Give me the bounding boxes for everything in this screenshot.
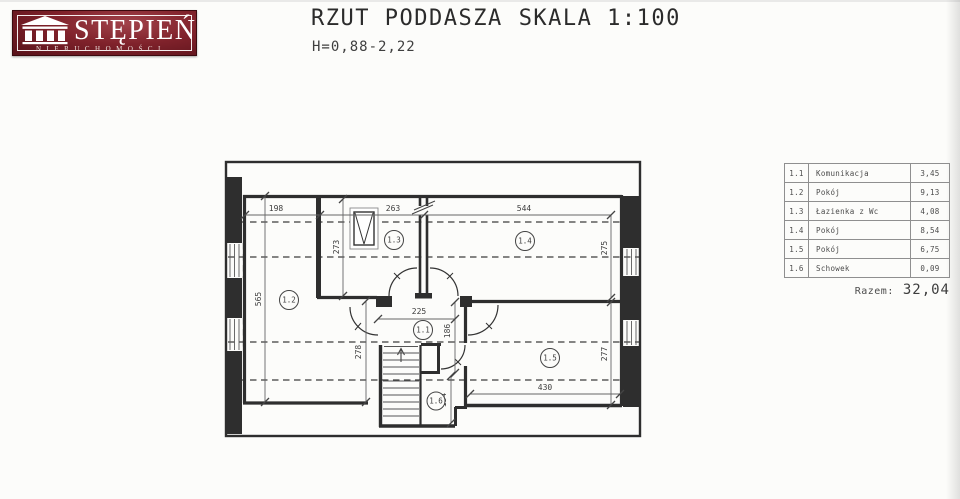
- door-arcs: [350, 268, 498, 369]
- dim-h13: 273: [332, 240, 341, 255]
- dim-h12b: 278: [354, 345, 363, 360]
- roof-window-icon: [350, 208, 378, 249]
- room-label-14: 1.4: [518, 237, 532, 246]
- room-label-12: 1.2: [282, 296, 296, 305]
- dimension-ticks: [241, 192, 624, 427]
- wall-break-symbol: [412, 201, 435, 215]
- door-arc-room12: [350, 307, 378, 335]
- dim-w13: 263: [386, 204, 401, 213]
- dim-h12: 565: [254, 292, 263, 307]
- room-label-16: 1.6: [429, 397, 443, 406]
- dim-w12: 198: [269, 204, 284, 213]
- dim-w14: 544: [517, 204, 532, 213]
- stairs: [383, 347, 419, 417]
- room-label-15: 1.5: [543, 354, 557, 363]
- floor-plan: 198 263 544 565 273 275 225 186 278 277 …: [0, 0, 960, 499]
- dim-h15: 277: [600, 347, 609, 362]
- door-arc-schowek: [441, 345, 465, 369]
- room-label-11: 1.1: [416, 326, 430, 335]
- dimension-labels: 198 263 544 565 273 275 225 186 278 277 …: [254, 204, 609, 407]
- door-arc-room15: [468, 305, 498, 335]
- dim-h14: 275: [600, 241, 609, 256]
- dim-hall-w: 225: [412, 307, 427, 316]
- door-arc-room14: [430, 268, 458, 296]
- dim-w15: 430: [538, 383, 553, 392]
- dim-hall-h: 186: [443, 324, 452, 339]
- dimension-lines: [245, 196, 620, 423]
- door-arc-bathroom: [389, 268, 417, 296]
- room-label-13: 1.3: [387, 236, 401, 245]
